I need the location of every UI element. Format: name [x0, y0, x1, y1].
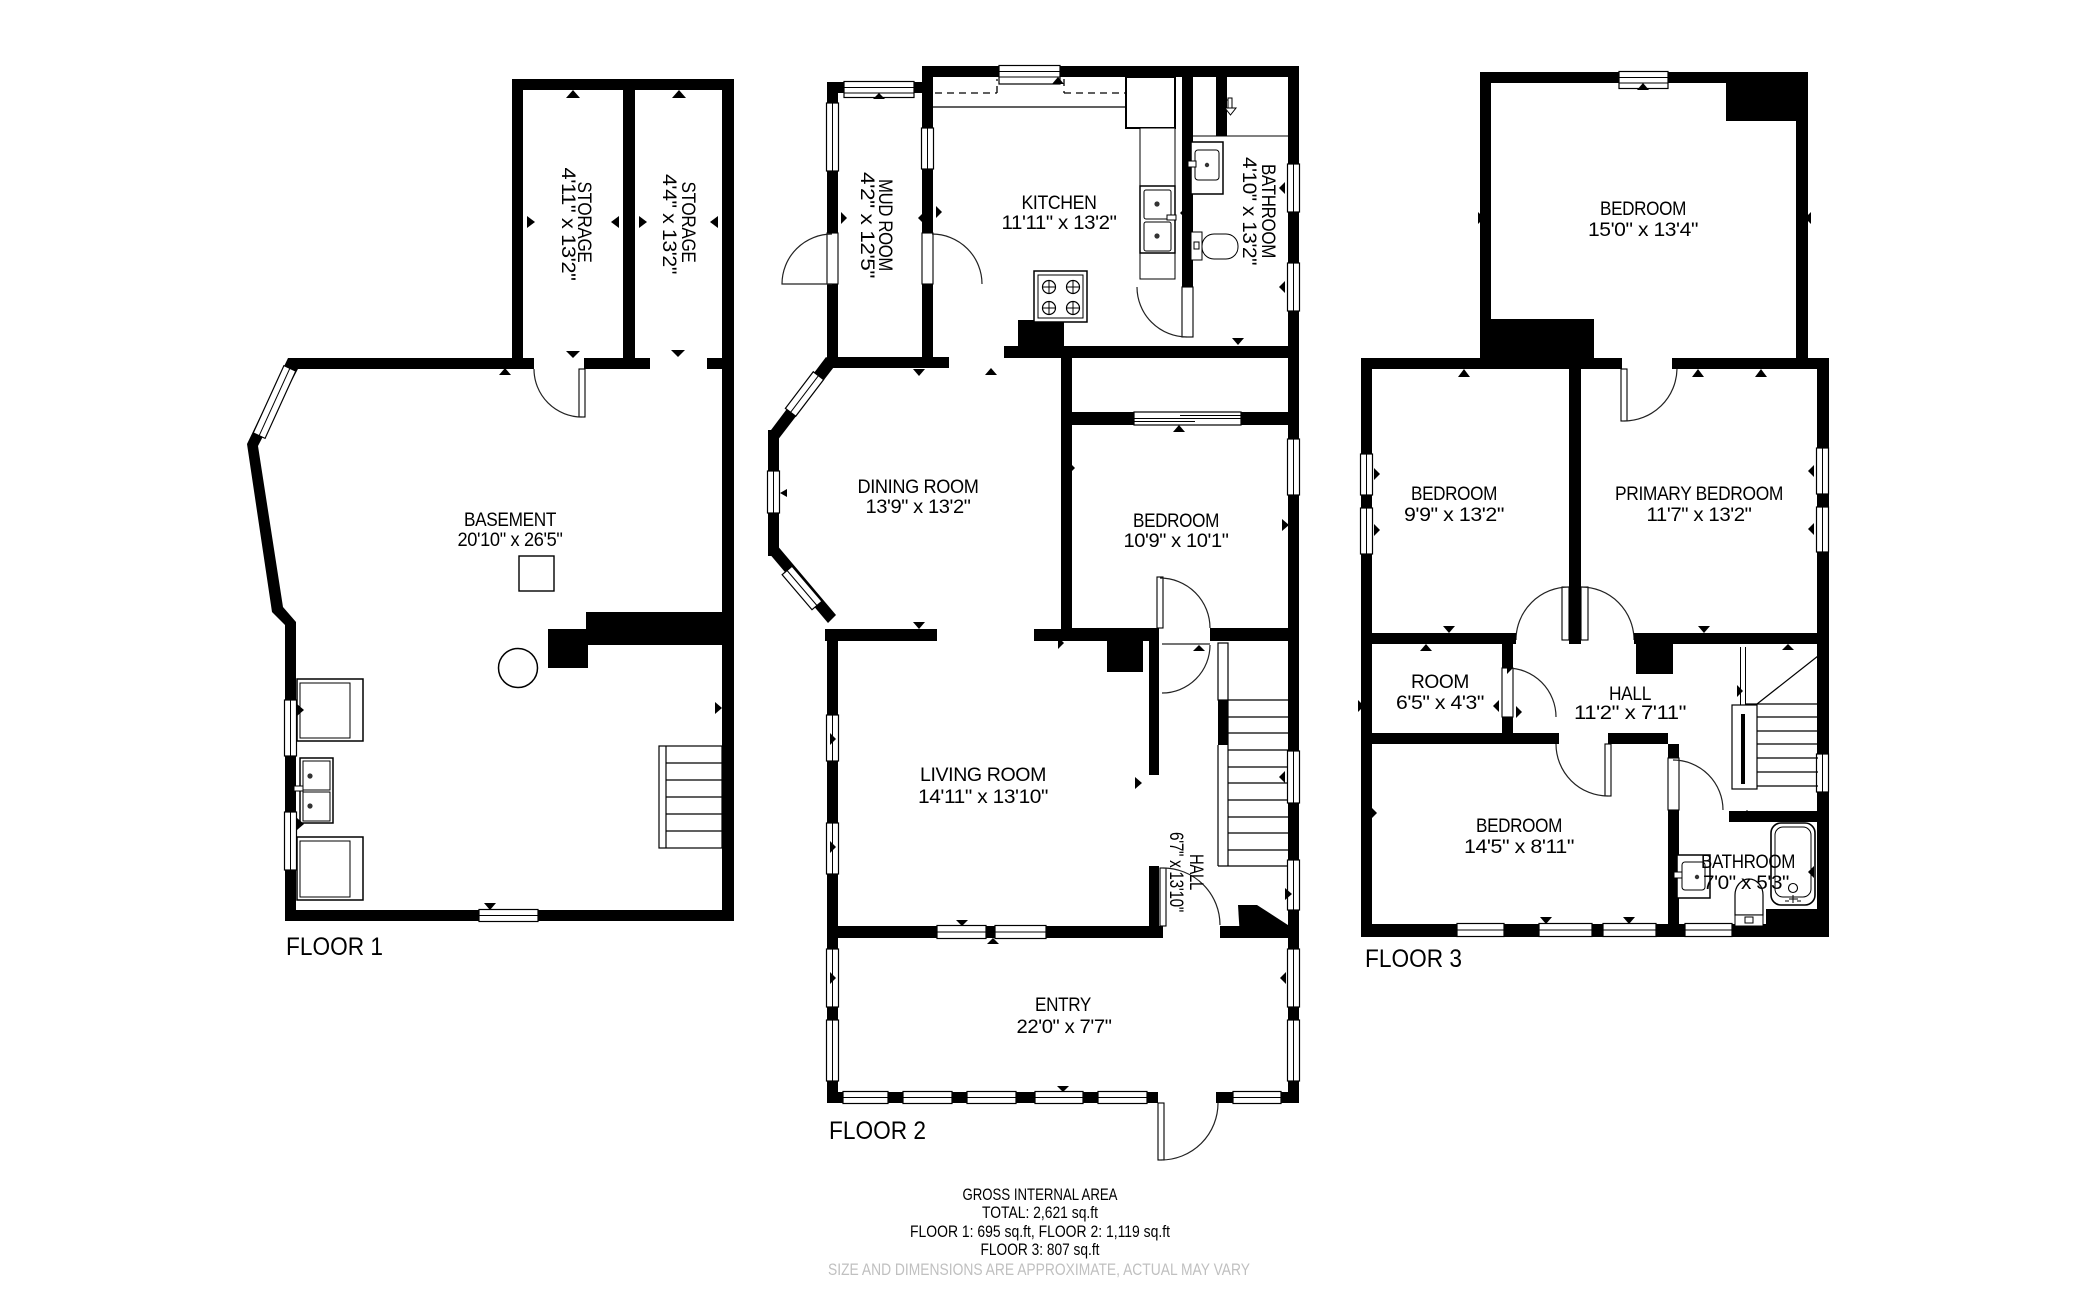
svg-text:FLOOR 3: FLOOR 3: [1365, 945, 1462, 973]
svg-text:22'0" x 7'7": 22'0" x 7'7": [1017, 1017, 1112, 1038]
svg-text:10'9" x 10'1": 10'9" x 10'1": [1124, 531, 1229, 552]
svg-text:11'7" x 13'2": 11'7" x 13'2": [1647, 505, 1752, 526]
svg-text:PRIMARY BEDROOM: PRIMARY BEDROOM: [1615, 484, 1783, 505]
svg-text:6'5" x 4'3": 6'5" x 4'3": [1396, 693, 1484, 714]
svg-text:HALL: HALL: [1185, 854, 1206, 890]
svg-text:ENTRY: ENTRY: [1035, 995, 1092, 1016]
svg-text:7'0" x 5'3": 7'0" x 5'3": [1703, 873, 1789, 894]
svg-text:HALL: HALL: [1609, 684, 1651, 705]
svg-text:STORAGE: STORAGE: [677, 182, 698, 263]
svg-text:KITCHEN: KITCHEN: [1022, 193, 1097, 214]
svg-text:FLOOR 2: FLOOR 2: [829, 1117, 926, 1145]
svg-text:4'11" x 13'2": 4'11" x 13'2": [557, 168, 578, 281]
svg-text:DINING ROOM: DINING ROOM: [858, 477, 979, 498]
svg-text:SIZE AND DIMENSIONS ARE APPROX: SIZE AND DIMENSIONS ARE APPROXIMATE, ACT…: [828, 1260, 1250, 1279]
svg-text:4'2" x 12'5": 4'2" x 12'5": [856, 172, 877, 278]
svg-text:20'10" x 26'5": 20'10" x 26'5": [458, 530, 563, 551]
svg-text:6'7" x 13'10": 6'7" x 13'10": [1165, 832, 1186, 912]
svg-text:TOTAL: 2,621 sq.ft: TOTAL: 2,621 sq.ft: [982, 1203, 1098, 1222]
svg-text:4'4" x 13'2": 4'4" x 13'2": [658, 174, 679, 274]
svg-text:BEDROOM: BEDROOM: [1476, 816, 1562, 837]
svg-text:4'10" x 13'2": 4'10" x 13'2": [1238, 157, 1259, 265]
svg-text:13'9" x 13'2": 13'9" x 13'2": [866, 497, 971, 518]
svg-text:14'5" x 8'11": 14'5" x 8'11": [1464, 837, 1574, 858]
svg-text:LIVING ROOM: LIVING ROOM: [920, 765, 1046, 786]
svg-text:BEDROOM: BEDROOM: [1600, 199, 1686, 220]
svg-text:BASEMENT: BASEMENT: [464, 510, 557, 531]
svg-text:ROOM: ROOM: [1411, 672, 1469, 693]
svg-text:BEDROOM: BEDROOM: [1411, 484, 1497, 505]
svg-text:9'9" x 13'2": 9'9" x 13'2": [1404, 505, 1504, 526]
svg-text:11'11" x 13'2": 11'11" x 13'2": [1002, 213, 1117, 234]
svg-text:11'2" x 7'11": 11'2" x 7'11": [1574, 703, 1686, 724]
svg-text:FLOOR 1: 695 sq.ft, FLOOR 2: 1: FLOOR 1: 695 sq.ft, FLOOR 2: 1,119 sq.ft: [910, 1222, 1170, 1241]
svg-text:FLOOR 1: FLOOR 1: [286, 933, 383, 961]
svg-text:14'11" x 13'10": 14'11" x 13'10": [918, 787, 1048, 808]
svg-text:15'0" x 13'4": 15'0" x 13'4": [1588, 220, 1698, 241]
svg-text:FLOOR 3: 807 sq.ft: FLOOR 3: 807 sq.ft: [981, 1240, 1100, 1259]
svg-text:BATHROOM: BATHROOM: [1701, 852, 1795, 873]
svg-text:BATHROOM: BATHROOM: [1257, 164, 1278, 258]
svg-text:BEDROOM: BEDROOM: [1133, 511, 1219, 532]
svg-text:GROSS INTERNAL AREA: GROSS INTERNAL AREA: [963, 1185, 1119, 1204]
